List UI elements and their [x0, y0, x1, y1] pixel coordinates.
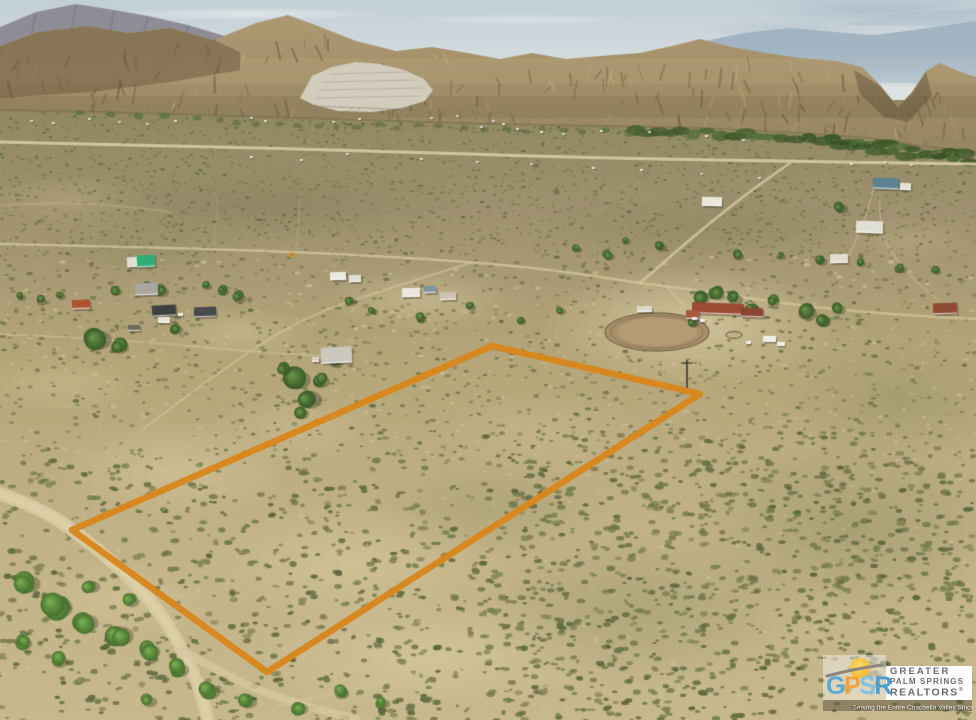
gpsr-org-line-3: REALTORS®	[890, 687, 972, 699]
gpsr-logo: GPSR GREATER PALM SPRINGS REALTORS® Serv…	[823, 655, 972, 711]
gpsr-acronym: GPSR	[826, 674, 891, 699]
registered-mark: ®	[959, 687, 963, 693]
gpsr-logo-mark: GPSR	[823, 655, 886, 700]
property-boundary-line	[72, 346, 700, 672]
gpsr-tagline: Serving the Entire Coachella Valley Sinc…	[823, 700, 972, 711]
aerial-photo-frame: GPSR GREATER PALM SPRINGS REALTORS® Serv…	[0, 0, 976, 720]
gpsr-org-name: GREATER PALM SPRINGS REALTORS®	[886, 666, 972, 700]
gpsr-logo-row: GPSR GREATER PALM SPRINGS REALTORS®	[823, 655, 972, 700]
property-boundary-overlay	[0, 0, 976, 720]
